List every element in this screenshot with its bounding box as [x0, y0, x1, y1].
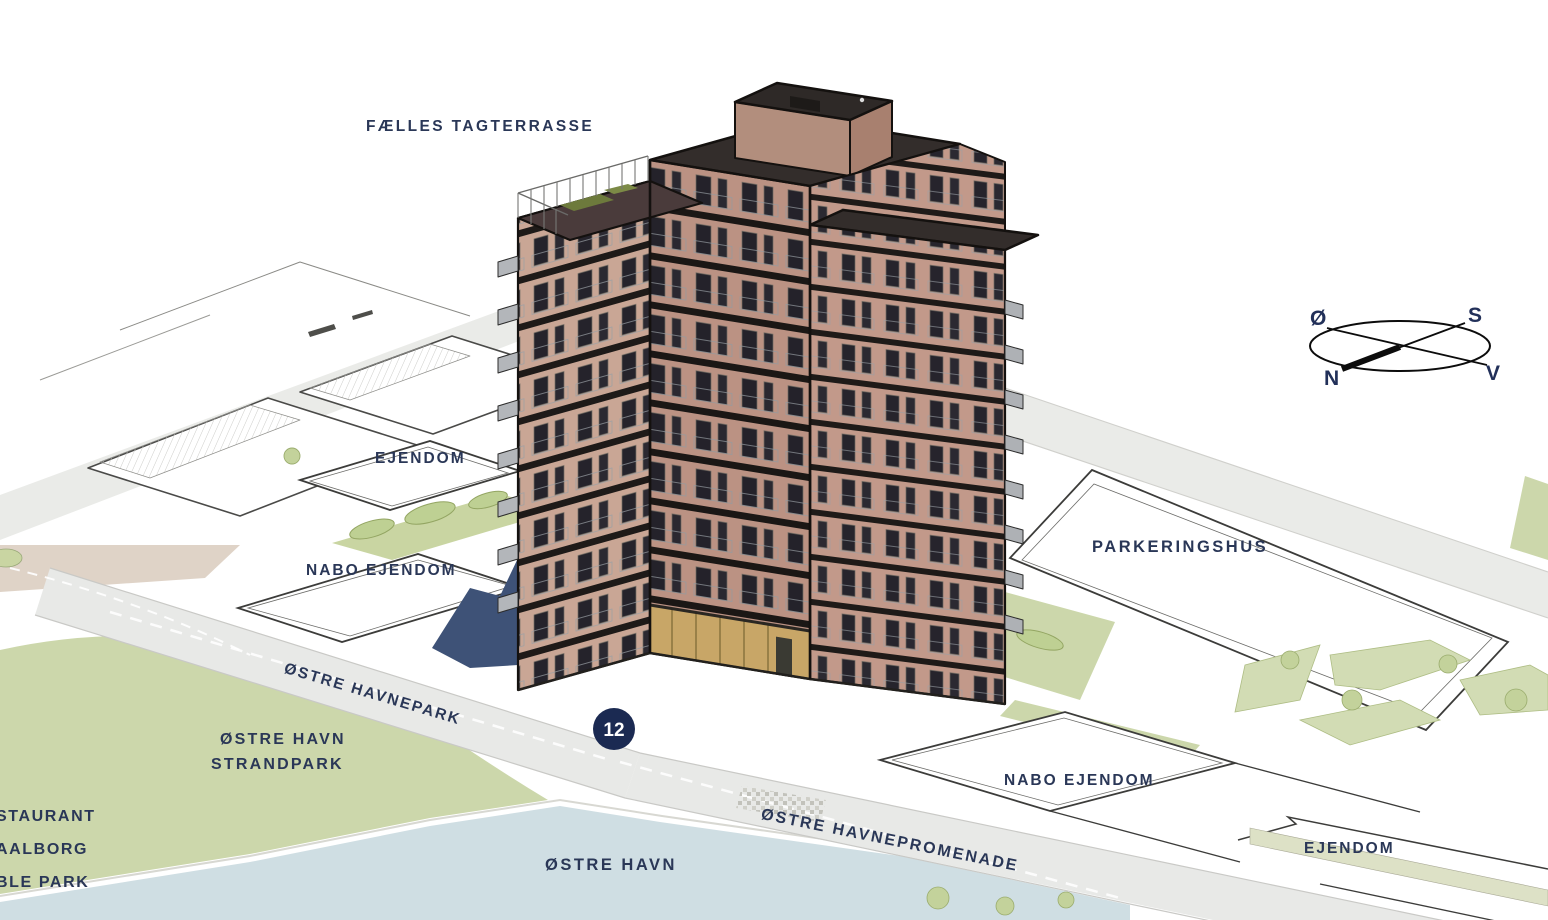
oestre-havn-label: ØSTRE HAVN	[545, 856, 677, 874]
west-balconies	[498, 256, 518, 613]
footprint-nabo-ejendom-right	[880, 712, 1235, 811]
east-balconies	[1005, 300, 1023, 634]
building-12	[498, 83, 1038, 704]
front-facade	[650, 160, 810, 679]
compass-north-needle	[1342, 347, 1400, 369]
ejendom-left-label: EJENDOM	[375, 450, 466, 467]
compass-north-label: N	[1324, 367, 1339, 390]
nabo-ejendom-right-label: NABO EJENDOM	[1004, 772, 1155, 789]
badge-number: 12	[603, 720, 624, 741]
ejendom-right-label: EJENDOM	[1304, 840, 1395, 857]
compass-west-label: V	[1486, 362, 1500, 385]
compass-east-label: Ø	[1310, 307, 1326, 330]
address-badge: 12	[593, 708, 635, 750]
parkeringshus-label: PARKERINGSHUS	[1092, 538, 1268, 556]
east-facade	[810, 225, 1005, 704]
site-plan-svg: 12 Ø S N V	[0, 0, 1548, 920]
compass-south-label: S	[1468, 304, 1482, 327]
compass: Ø S N V	[1310, 304, 1500, 390]
site-plan-rendering: 12 Ø S N V FÆLLES TAGTERRASSE EJENDOM NA…	[0, 0, 1548, 920]
nabo-ejendom-left-label: NABO EJENDOM	[306, 562, 457, 579]
beach-patch	[0, 545, 240, 592]
roof-terrace-label: FÆLLES TAGTERRASSE	[366, 118, 594, 135]
west-facade	[518, 181, 650, 690]
penthouse	[735, 83, 892, 176]
